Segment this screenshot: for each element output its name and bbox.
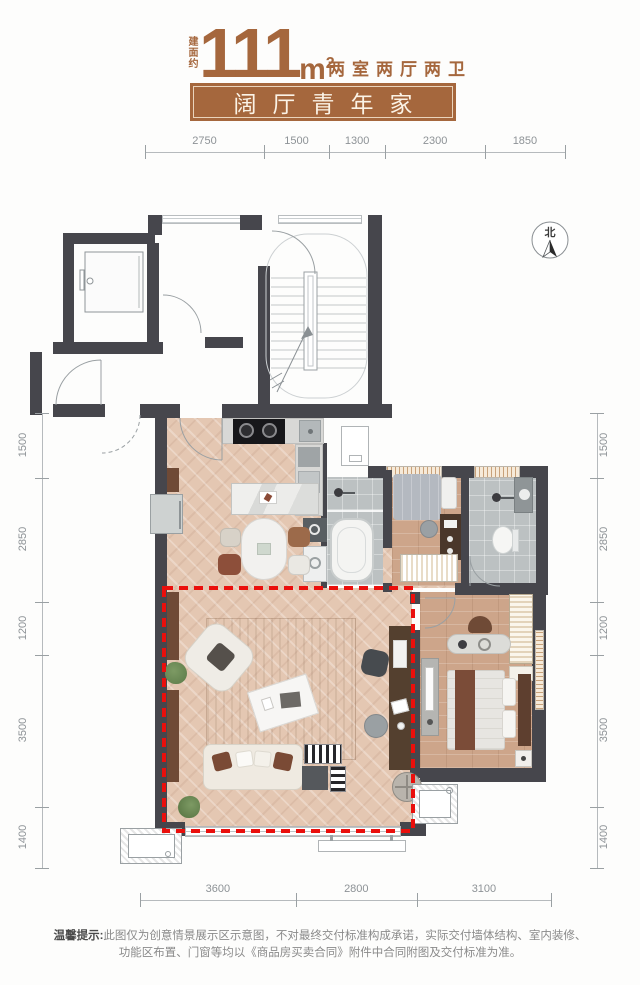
dining-chair — [288, 527, 310, 547]
kitchen-island — [231, 483, 319, 515]
wall — [53, 404, 105, 417]
disclaimer-text1: 此图仅为创意情景展示区示意图，不对最终交付标准构成承诺，实际交付墙体结构、室内装… — [103, 930, 586, 942]
bathtub — [330, 518, 374, 582]
stair-door-arc — [272, 231, 315, 274]
desk-chair — [420, 520, 438, 538]
wall — [205, 337, 243, 348]
bed-pillow — [502, 710, 516, 738]
disclaimer-text2: 功能区布置、门窗等均以《商品房买卖合同》附件中合同附图及交付标准为准。 — [119, 947, 522, 959]
wall — [155, 418, 167, 836]
side-cabinet — [167, 690, 179, 782]
living-room-window — [185, 826, 401, 837]
elevator-vent-window — [162, 215, 242, 224]
vanity-sink — [514, 477, 533, 513]
dining-chair — [220, 528, 241, 547]
elevator-icon — [80, 252, 143, 312]
bed-runner — [455, 670, 475, 750]
wall — [368, 215, 382, 417]
wall — [461, 472, 469, 588]
burner — [262, 423, 277, 438]
dining-chair — [288, 555, 310, 575]
wall — [147, 243, 159, 343]
tv-dresser — [421, 658, 439, 736]
wall — [63, 233, 155, 244]
wall — [63, 233, 74, 354]
bedroom-chair — [468, 616, 492, 633]
sofa-pillow — [211, 751, 233, 772]
north-indicator-icon: 北 — [532, 222, 568, 258]
staircase-icon — [266, 234, 367, 398]
fridge — [150, 494, 183, 534]
kitchen-sink — [299, 420, 321, 442]
lobby-door-arc — [163, 295, 201, 333]
disclaimer-prefix: 温馨提示: — [54, 930, 104, 942]
nightstand — [515, 750, 532, 767]
dressing-bench — [447, 634, 511, 654]
sofa-pillow — [272, 751, 293, 771]
burner — [239, 423, 254, 438]
window-ledge — [318, 840, 406, 852]
dining-table — [241, 518, 287, 580]
wall — [536, 466, 548, 590]
master-window-right — [535, 630, 544, 710]
corridor-door-arc — [56, 360, 101, 405]
wall — [140, 404, 180, 418]
wall — [410, 630, 420, 778]
media-console-striped — [330, 766, 346, 792]
office-chair — [364, 714, 388, 738]
svg-text:北: 北 — [545, 225, 556, 239]
plant — [165, 662, 187, 684]
headboard — [518, 674, 531, 746]
disclaimer: 温馨提示:此图仅为创意情景展示区示意图，不对最终交付标准构成承诺，实际交付墙体结… — [40, 928, 600, 962]
floorplan-screenshot: { "header": { "area_label": "建面约", "area… — [0, 0, 640, 985]
single-bed — [393, 474, 441, 520]
wall — [148, 215, 162, 235]
sofa — [203, 744, 303, 790]
shower-head — [334, 488, 343, 497]
ac-unit — [412, 784, 458, 824]
bed-pillow — [441, 477, 457, 509]
media-console-dark — [302, 766, 328, 790]
side-cabinet — [167, 592, 179, 660]
wall — [410, 592, 420, 604]
bathroom1-partition — [327, 510, 383, 512]
cooktop — [233, 419, 285, 444]
ac-unit — [120, 828, 182, 864]
wall — [420, 768, 546, 782]
wall — [383, 470, 392, 548]
bed-pillow — [502, 678, 516, 706]
wardrobe — [400, 554, 458, 582]
floor-plan: 北 — [0, 0, 640, 985]
wall — [455, 583, 548, 595]
unit-entry-door-arc — [102, 415, 140, 453]
wall — [30, 352, 42, 415]
plant — [178, 796, 200, 818]
wall — [53, 342, 163, 354]
wall — [400, 822, 426, 836]
toilet — [492, 526, 514, 554]
wall — [240, 215, 262, 230]
master-wardrobe — [509, 594, 533, 664]
entry-cabinet — [167, 468, 179, 492]
shower-head — [492, 493, 501, 502]
work-desk — [389, 626, 411, 770]
wall — [258, 266, 270, 416]
dining-chair — [218, 554, 241, 575]
wall — [383, 583, 392, 592]
ac-platform — [341, 426, 369, 466]
wall — [222, 404, 392, 418]
stair-vent-window — [278, 215, 362, 224]
media-console-striped — [304, 744, 342, 764]
